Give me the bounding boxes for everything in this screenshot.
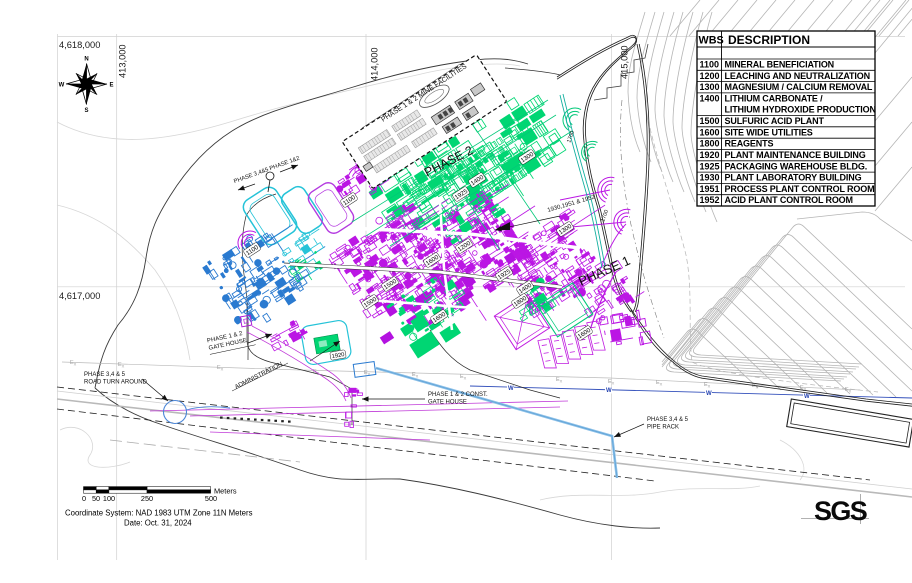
svg-text:DESCRIPTION: DESCRIPTION bbox=[728, 33, 810, 47]
svg-text:Date: Oct. 31, 2024: Date: Oct. 31, 2024 bbox=[124, 519, 192, 528]
svg-text:1952: 1952 bbox=[700, 195, 720, 205]
svg-text:E: E bbox=[109, 82, 113, 88]
svg-text:250: 250 bbox=[141, 494, 153, 503]
svg-text:EX: EX bbox=[608, 379, 615, 386]
svg-text:SULFURIC ACID PLANT: SULFURIC ACID PLANT bbox=[725, 116, 825, 126]
svg-text:1400: 1400 bbox=[700, 93, 720, 103]
svg-text:EX: EX bbox=[460, 374, 467, 381]
svg-text:REAGENTS: REAGENTS bbox=[725, 139, 774, 149]
svg-text:1100: 1100 bbox=[700, 60, 720, 70]
svg-text:PHASE 3,4 & 5: PHASE 3,4 & 5 bbox=[84, 372, 126, 378]
svg-text:EX: EX bbox=[118, 362, 125, 369]
svg-text:SITE WIDE UTILITIES: SITE WIDE UTILITIES bbox=[725, 127, 813, 137]
svg-text:4,617,000: 4,617,000 bbox=[59, 291, 100, 301]
svg-text:MAGNESIUM / CALCIUM REMOVAL: MAGNESIUM / CALCIUM REMOVAL bbox=[725, 82, 873, 92]
svg-text:EX: EX bbox=[845, 387, 852, 394]
svg-text:LITHIUM CARBONATE /: LITHIUM CARBONATE / bbox=[725, 93, 824, 103]
svg-text:1200: 1200 bbox=[700, 71, 720, 81]
svg-text:W: W bbox=[606, 388, 612, 394]
svg-text:ROAD TURN AROUND: ROAD TURN AROUND bbox=[84, 380, 148, 386]
svg-text:50: 50 bbox=[92, 494, 100, 503]
svg-text:N: N bbox=[84, 57, 88, 63]
svg-text:LEACHING AND NEUTRALIZATION: LEACHING AND NEUTRALIZATION bbox=[725, 71, 870, 81]
svg-text:PLANT MAINTENANCE BUILDING: PLANT MAINTENANCE BUILDING bbox=[725, 150, 866, 160]
svg-text:1300: 1300 bbox=[700, 82, 720, 92]
svg-text:EX: EX bbox=[70, 360, 77, 367]
svg-text:WBS: WBS bbox=[699, 35, 724, 47]
svg-text:1951: 1951 bbox=[700, 184, 720, 194]
svg-text:1500: 1500 bbox=[700, 116, 720, 126]
svg-text:Meters: Meters bbox=[214, 487, 237, 496]
svg-text:414,000: 414,000 bbox=[370, 47, 380, 81]
svg-text:PHASE 3,4 & 5: PHASE 3,4 & 5 bbox=[647, 417, 689, 423]
svg-text:1925: 1925 bbox=[700, 161, 720, 171]
svg-text:500: 500 bbox=[205, 494, 217, 503]
svg-text:PIPE RACK: PIPE RACK bbox=[647, 425, 679, 431]
svg-text:PROCESS PLANT CONTROL ROOM: PROCESS PLANT CONTROL ROOM bbox=[725, 184, 875, 194]
svg-text:EX: EX bbox=[656, 380, 663, 387]
svg-text:EX: EX bbox=[704, 382, 711, 389]
svg-text:1800: 1800 bbox=[700, 139, 720, 149]
svg-text:4,618,000: 4,618,000 bbox=[59, 40, 100, 50]
svg-text:100: 100 bbox=[103, 494, 115, 503]
svg-text:W: W bbox=[508, 386, 514, 392]
svg-text:0: 0 bbox=[82, 494, 86, 503]
svg-text:EX: EX bbox=[556, 377, 563, 384]
svg-text:413,000: 413,000 bbox=[118, 44, 128, 78]
svg-text:W: W bbox=[804, 394, 810, 400]
svg-text:GATE HOUSE: GATE HOUSE bbox=[428, 400, 467, 406]
svg-text:1930: 1930 bbox=[700, 173, 720, 183]
svg-text:1600: 1600 bbox=[700, 127, 720, 137]
svg-text:S: S bbox=[84, 108, 88, 114]
svg-text:LITHIUM HYDROXIDE PRODUCTION: LITHIUM HYDROXIDE PRODUCTION bbox=[725, 105, 876, 115]
svg-text:W: W bbox=[706, 391, 712, 397]
svg-text:PLANT LABORATORY BUILDING: PLANT LABORATORY BUILDING bbox=[725, 173, 862, 183]
svg-text:SGS: SGS bbox=[814, 496, 867, 526]
svg-text:Coordinate System: NAD 1983 UT: Coordinate System: NAD 1983 UTM Zone 11N… bbox=[65, 509, 253, 518]
svg-text:MINERAL BENEFICIATION: MINERAL BENEFICIATION bbox=[725, 60, 835, 70]
svg-text:W: W bbox=[59, 82, 65, 88]
svg-text:EX: EX bbox=[217, 365, 224, 372]
svg-text:1920: 1920 bbox=[700, 150, 720, 160]
svg-text:PACKAGING WAREHOUSE BLDG.: PACKAGING WAREHOUSE BLDG. bbox=[725, 161, 868, 171]
svg-text:PHASE 1 & 2 CONST.: PHASE 1 & 2 CONST. bbox=[428, 392, 488, 398]
svg-text:ACID PLANT CONTROL ROOM: ACID PLANT CONTROL ROOM bbox=[725, 195, 853, 205]
